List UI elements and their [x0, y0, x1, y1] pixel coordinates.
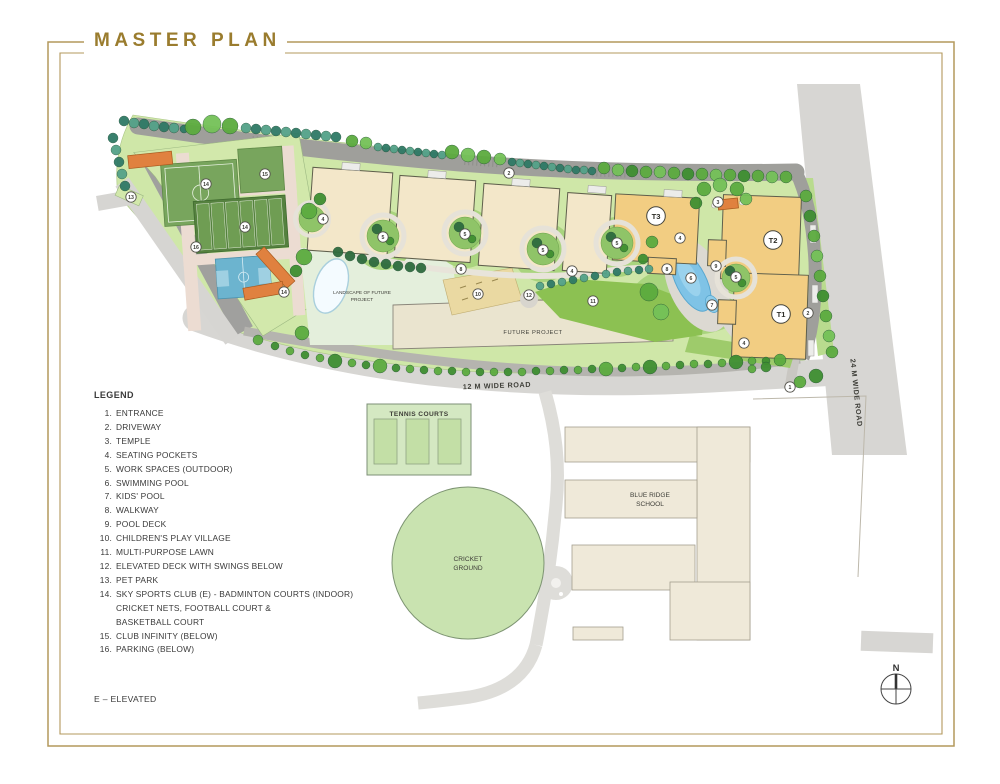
plan-marker-6: 6	[686, 273, 696, 283]
tree-icon	[301, 351, 309, 359]
plan-marker-4: 4	[739, 338, 749, 348]
tree-icon	[222, 118, 238, 134]
tree-icon	[794, 376, 806, 388]
tree-icon	[281, 127, 291, 137]
tree-icon	[638, 254, 648, 264]
tree-icon	[301, 129, 311, 139]
tree-icon	[286, 347, 294, 355]
tree-icon	[682, 168, 694, 180]
tree-icon	[119, 116, 129, 126]
plan-marker-8: 8	[456, 264, 466, 274]
tree-icon	[536, 282, 544, 290]
tree-icon	[598, 162, 610, 174]
tree-icon	[774, 354, 786, 366]
tree-icon	[823, 330, 835, 342]
tree-icon	[748, 365, 756, 373]
tree-icon	[696, 168, 708, 180]
tree-icon	[558, 278, 566, 286]
svg-text:14: 14	[281, 290, 287, 296]
tree-icon	[241, 123, 251, 133]
tree-icon	[392, 364, 400, 372]
svg-text:11: 11	[590, 299, 596, 305]
tree-icon	[817, 290, 829, 302]
plan-marker-1: 1	[785, 382, 795, 392]
tree-icon	[640, 166, 652, 178]
legend-item-8: 8.WALKWAY	[94, 504, 384, 518]
tree-icon	[690, 360, 698, 368]
tree-icon	[602, 270, 610, 278]
tree-icon	[129, 118, 139, 128]
plan-marker-10: 10	[473, 289, 483, 299]
blue-ridge-school	[565, 427, 750, 640]
plan-marker-5: 5	[612, 238, 622, 248]
club-infinity-area	[238, 146, 285, 193]
legend-item-7: 7.KIDS' POOL	[94, 490, 384, 504]
tree-icon	[398, 146, 406, 154]
cricket-ground-label-2: GROUND	[453, 565, 483, 572]
svg-text:4: 4	[679, 236, 682, 242]
tree-icon	[345, 251, 355, 261]
svg-text:T3: T3	[652, 212, 661, 221]
tree-icon	[748, 357, 756, 365]
tree-icon	[261, 125, 271, 135]
tree-icon	[476, 368, 484, 376]
tree-icon	[591, 272, 599, 280]
plan-marker-13: 13	[126, 192, 136, 202]
plan-marker-7: 7	[707, 300, 717, 310]
svg-text:4: 4	[322, 217, 325, 223]
legend-item-15: 15.CLUB INFINITY (BELOW)	[94, 630, 384, 644]
legend-item-2: 2.DRIVEWAY	[94, 421, 384, 435]
tree-icon	[624, 267, 632, 275]
tree-icon	[653, 304, 669, 320]
tree-icon	[416, 263, 426, 273]
tree-icon	[314, 193, 326, 205]
svg-text:14: 14	[203, 182, 209, 188]
legend-item-3: 3.TEMPLE	[94, 435, 384, 449]
tree-icon	[374, 143, 382, 151]
tree-icon	[826, 346, 838, 358]
tree-icon	[532, 161, 540, 169]
tree-icon	[348, 359, 356, 367]
legend-item-10: 10.CHILDREN'S PLAY VILLAGE	[94, 532, 384, 546]
future-project-label: FUTURE PROJECT	[503, 330, 562, 336]
tree-icon	[574, 366, 582, 374]
legend-item-continuation: CRICKET NETS, FOOTBALL COURT &	[94, 602, 384, 616]
svg-text:5: 5	[616, 241, 619, 247]
tree-icon	[159, 122, 169, 132]
svg-text:3: 3	[717, 200, 720, 206]
svg-text:8: 8	[460, 267, 463, 273]
plan-marker-8: 8	[662, 264, 672, 274]
elevated-note: E – ELEVATED	[94, 694, 157, 704]
plan-marker-9: 9	[711, 261, 721, 271]
svg-text:14: 14	[242, 225, 248, 231]
tree-icon	[532, 367, 540, 375]
tree-icon	[393, 261, 403, 271]
plan-marker-5: 5	[731, 272, 741, 282]
legend: LEGEND 1.ENTRANCE2.DRIVEWAY3.TEMPLE4.SEA…	[94, 390, 384, 657]
svg-text:5: 5	[735, 275, 738, 281]
tree-icon	[321, 131, 331, 141]
svg-text:7: 7	[711, 303, 714, 309]
tree-icon	[820, 310, 832, 322]
legend-item-16: 16.PARKING (BELOW)	[94, 643, 384, 657]
plan-marker-5: 5	[538, 245, 548, 255]
plan-marker-14: 14	[201, 179, 211, 189]
plan-marker-4: 4	[675, 233, 685, 243]
tree-icon	[185, 119, 201, 135]
school-label-1: BLUE RIDGE	[630, 492, 671, 499]
tree-icon	[646, 236, 658, 248]
legend-item-9: 9.POOL DECK	[94, 518, 384, 532]
tree-icon	[291, 128, 301, 138]
legend-item-11: 11.MULTI-PURPOSE LAWN	[94, 546, 384, 560]
plan-marker-15: 15	[260, 169, 270, 179]
tree-icon	[149, 121, 159, 131]
legend-items: 1.ENTRANCE2.DRIVEWAY3.TEMPLE4.SEATING PO…	[94, 407, 384, 657]
plan-marker-16: 16	[191, 242, 201, 252]
page-title: MASTER PLAN	[94, 30, 287, 52]
tree-icon	[516, 159, 524, 167]
tree-icon	[599, 362, 613, 376]
tree-icon	[724, 169, 736, 181]
svg-text:8: 8	[666, 267, 669, 273]
plan-marker-14: 14	[240, 222, 250, 232]
landscape-label-2: PROJECT	[351, 297, 373, 303]
tree-icon	[612, 164, 624, 176]
svg-text:T1: T1	[777, 310, 787, 319]
tower-badge-t1: T1	[772, 305, 791, 324]
tree-icon	[362, 361, 370, 369]
tree-icon	[251, 124, 261, 134]
tree-icon	[640, 283, 658, 301]
tree-icon	[540, 162, 548, 170]
svg-text:10: 10	[475, 292, 481, 298]
tree-icon	[654, 166, 666, 178]
tree-icon	[434, 367, 442, 375]
cricket-ground-label-1: CRICKET	[454, 556, 483, 563]
tree-icon	[381, 259, 391, 269]
tree-icon	[697, 182, 711, 196]
tree-icon	[730, 182, 744, 196]
tree-icon	[373, 359, 387, 373]
legend-item-1: 1.ENTRANCE	[94, 407, 384, 421]
legend-item-13: 13.PET PARK	[94, 574, 384, 588]
school-label-2: SCHOOL	[636, 501, 664, 508]
tree-icon	[546, 367, 554, 375]
plan-marker-4: 4	[318, 214, 328, 224]
plan-marker-2: 2	[803, 308, 813, 318]
tower-badge-t3: T3	[647, 207, 666, 226]
tree-icon	[169, 123, 179, 133]
tree-icon	[588, 365, 596, 373]
tree-icon	[295, 326, 309, 340]
tree-icon	[253, 335, 263, 345]
tree-icon	[632, 363, 640, 371]
tree-icon	[296, 249, 312, 265]
tree-icon	[290, 265, 302, 277]
svg-text:15: 15	[262, 172, 268, 178]
tree-icon	[569, 276, 577, 284]
tree-icon	[406, 365, 414, 373]
tree-icon	[430, 150, 438, 158]
tree-icon	[761, 362, 771, 372]
tree-icon	[438, 151, 446, 159]
tree-icon	[357, 254, 367, 264]
plan-marker-5: 5	[460, 229, 470, 239]
tree-icon	[613, 268, 621, 276]
svg-text:16: 16	[193, 245, 199, 251]
tree-icon	[490, 368, 498, 376]
tree-icon	[645, 265, 653, 273]
tree-icon	[740, 193, 752, 205]
tree-icon	[406, 147, 414, 155]
tennis-courts-label: TENNIS COURTS	[389, 411, 448, 418]
tree-icon	[662, 362, 670, 370]
tree-icon	[111, 145, 121, 155]
plan-marker-2: 2	[504, 168, 514, 178]
tree-icon	[369, 257, 379, 267]
plan-marker-5: 5	[378, 232, 388, 242]
tree-icon	[804, 210, 816, 222]
tree-icon	[668, 167, 680, 179]
svg-text:2: 2	[807, 311, 810, 317]
svg-text:2: 2	[508, 171, 511, 177]
tree-icon	[580, 274, 588, 282]
tree-icon	[139, 119, 149, 129]
tree-icon	[713, 178, 727, 192]
tree-icon	[547, 280, 555, 288]
tree-icon	[518, 368, 526, 376]
tree-icon	[311, 130, 321, 140]
tree-icon	[548, 163, 556, 171]
tree-icon	[814, 270, 826, 282]
tree-icon	[108, 133, 118, 143]
tree-icon	[524, 160, 532, 168]
svg-text:T2: T2	[769, 236, 778, 245]
tree-icon	[477, 150, 491, 164]
svg-text:9: 9	[715, 264, 718, 270]
tree-icon	[564, 165, 572, 173]
tree-icon	[643, 360, 657, 374]
tree-icon	[462, 368, 470, 376]
tree-icon	[729, 355, 743, 369]
landscape-label-1: LANDSCAPE OF FUTURE	[333, 290, 391, 296]
tree-icon	[809, 369, 823, 383]
tree-icon	[422, 149, 430, 157]
tree-icon	[704, 360, 712, 368]
tree-icon	[445, 145, 459, 159]
tree-icon	[766, 171, 778, 183]
tree-icon	[301, 203, 317, 219]
compass-north-label: N	[893, 663, 900, 674]
tree-icon	[626, 165, 638, 177]
tree-icon	[114, 157, 124, 167]
tree-icon	[572, 166, 580, 174]
master-plan-page: MASTER PLAN	[0, 0, 1000, 784]
plan-marker-3: 3	[713, 197, 723, 207]
plan-marker-11: 11	[588, 296, 598, 306]
tree-icon	[461, 148, 475, 162]
svg-text:1: 1	[789, 385, 792, 391]
tree-icon	[328, 354, 342, 368]
tree-icon	[752, 170, 764, 182]
tree-icon	[738, 170, 750, 182]
tree-icon	[405, 262, 415, 272]
plan-marker-12: 12	[524, 290, 534, 300]
tree-icon	[504, 368, 512, 376]
legend-item-4: 4.SEATING POCKETS	[94, 449, 384, 463]
tree-icon	[390, 145, 398, 153]
tree-icon	[360, 137, 372, 149]
svg-text:5: 5	[382, 235, 385, 241]
svg-text:13: 13	[128, 195, 134, 201]
tree-icon	[508, 158, 516, 166]
plan-marker-14: 14	[279, 287, 289, 297]
tree-icon	[120, 181, 130, 191]
tree-icon	[556, 164, 564, 172]
tree-icon	[718, 359, 726, 367]
tree-icon	[800, 190, 812, 202]
tree-icon	[808, 230, 820, 242]
svg-text:4: 4	[743, 341, 746, 347]
compass: N	[881, 663, 911, 704]
tree-icon	[690, 197, 702, 209]
legend-item-5: 5.WORK SPACES (OUTDOOR)	[94, 463, 384, 477]
cricket-ground	[392, 487, 544, 639]
tree-icon	[811, 250, 823, 262]
legend-item-14: 14.SKY SPORTS CLUB (E) - BADMINTON COURT…	[94, 588, 384, 602]
legend-item-continuation: BASKETBALL COURT	[94, 616, 384, 630]
svg-text:6: 6	[690, 276, 693, 282]
svg-text:12: 12	[526, 293, 532, 299]
tree-icon	[618, 364, 626, 372]
tree-icon	[382, 144, 390, 152]
tower-badge-t2: T2	[764, 231, 783, 250]
legend-item-6: 6.SWIMMING POOL	[94, 477, 384, 491]
tree-icon	[333, 247, 343, 257]
tree-icon	[676, 361, 684, 369]
svg-text:5: 5	[464, 232, 467, 238]
tree-icon	[494, 153, 506, 165]
tree-icon	[580, 166, 588, 174]
tree-icon	[448, 367, 456, 375]
tree-icon	[780, 171, 792, 183]
svg-text:4: 4	[571, 269, 574, 275]
tree-icon	[414, 148, 422, 156]
tree-icon	[331, 132, 341, 142]
tree-icon	[316, 354, 324, 362]
tree-icon	[271, 126, 281, 136]
tree-icon	[560, 366, 568, 374]
svg-text:5: 5	[542, 248, 545, 254]
tree-icon	[203, 115, 221, 133]
legend-title: LEGEND	[94, 390, 384, 400]
tree-icon	[588, 167, 596, 175]
tree-icon	[420, 366, 428, 374]
road-24m-stub	[861, 631, 934, 654]
tree-icon	[346, 135, 358, 147]
tree-icon	[271, 342, 279, 350]
legend-item-12: 12.ELEVATED DECK WITH SWINGS BELOW	[94, 560, 384, 574]
tree-icon	[117, 169, 127, 179]
plan-marker-4: 4	[567, 266, 577, 276]
tree-icon	[635, 266, 643, 274]
